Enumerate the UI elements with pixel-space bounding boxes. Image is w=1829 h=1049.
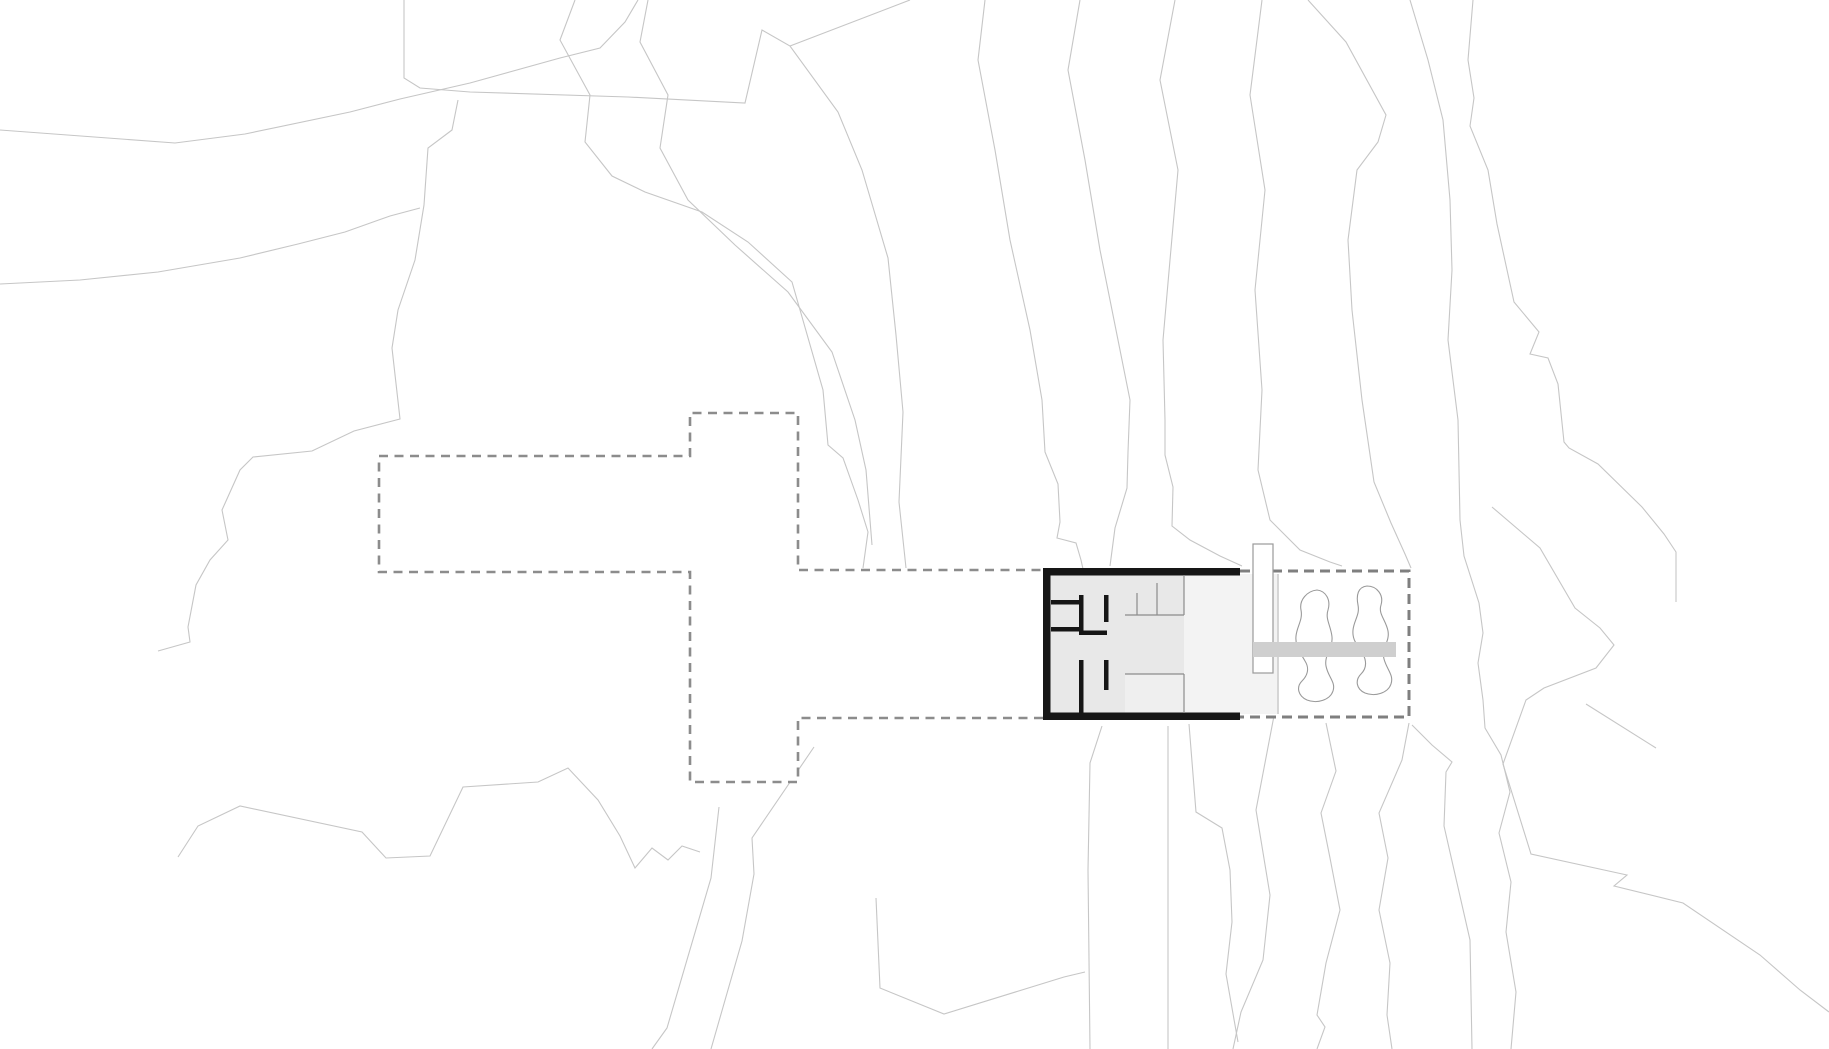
- contour-line: [1068, 0, 1130, 566]
- building-floor-inset: [1125, 674, 1184, 713]
- contour-line: [0, 0, 638, 143]
- building-wall: [1051, 627, 1079, 632]
- contour-line: [1410, 0, 1516, 1049]
- contour-line: [652, 807, 719, 1049]
- contour-line: [978, 0, 1083, 569]
- site-plan-canvas: [0, 0, 1829, 1049]
- building-wall: [1079, 631, 1107, 636]
- contour-line: [711, 747, 814, 1049]
- contour-line: [1308, 0, 1411, 568]
- building-wall: [1043, 568, 1051, 720]
- building-wall: [1079, 660, 1084, 713]
- contour-line: [1233, 700, 1277, 1049]
- contour-line: [1250, 0, 1342, 566]
- building-floor-porch: [1184, 575, 1240, 713]
- contour-line: [1317, 723, 1340, 1049]
- building-wall: [1079, 595, 1084, 635]
- contour-line: [1586, 704, 1656, 748]
- building-wall: [1043, 568, 1240, 576]
- contour-line: [1412, 725, 1472, 1049]
- contour-line: [1468, 0, 1676, 602]
- contour-line: [1379, 723, 1409, 1049]
- contour-line: [1189, 724, 1238, 1042]
- building-wall: [1051, 600, 1079, 605]
- contour-line: [876, 898, 1085, 1014]
- contour-line: [0, 208, 420, 284]
- building-wall: [1104, 595, 1109, 622]
- contour-line: [1160, 0, 1242, 566]
- building-wall: [1104, 660, 1109, 690]
- building-wall: [1043, 713, 1240, 721]
- contour-line: [178, 768, 700, 868]
- site-plan-drawing: [0, 0, 1829, 1049]
- deck-bar: [1253, 642, 1396, 657]
- contour-line: [1088, 726, 1102, 1049]
- contour-line: [790, 0, 910, 46]
- contour-line: [1492, 507, 1829, 1012]
